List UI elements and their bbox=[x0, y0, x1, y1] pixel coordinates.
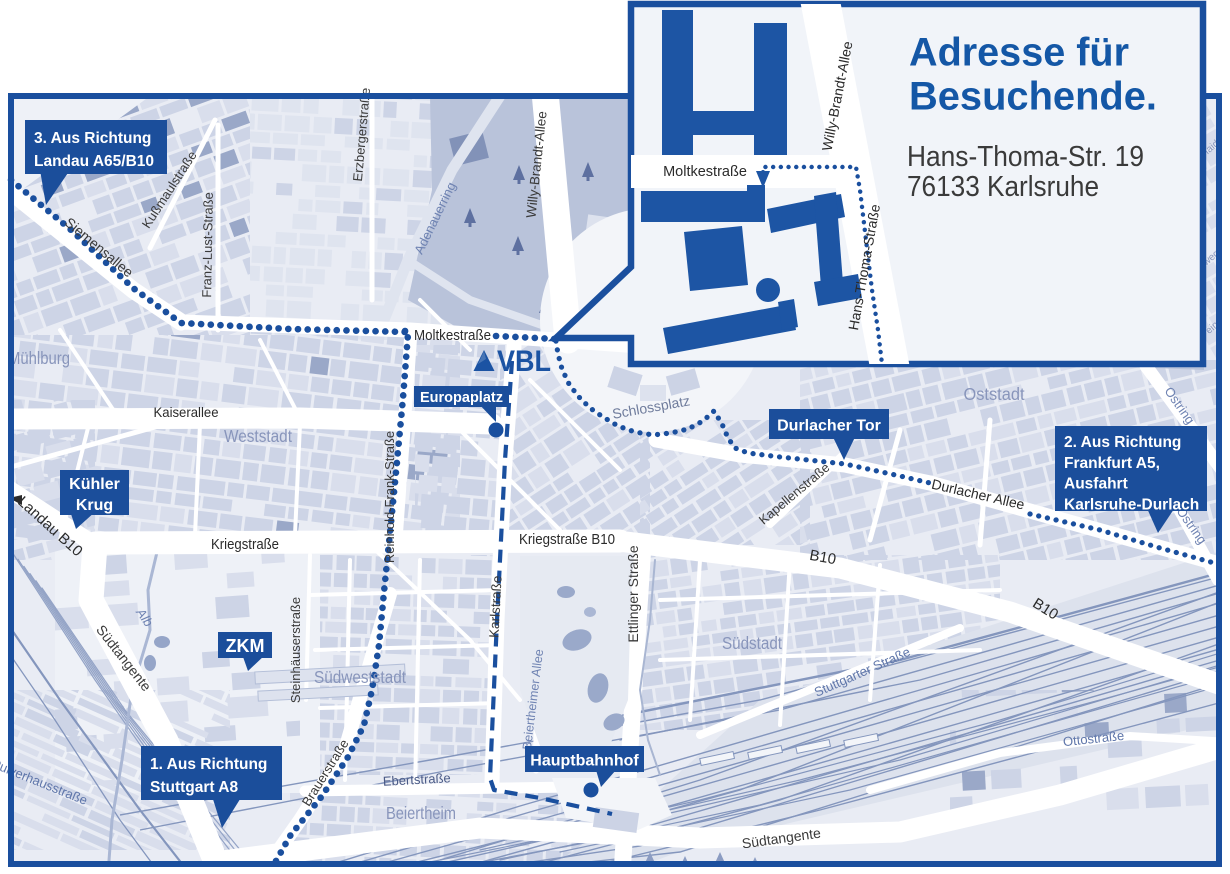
svg-text:Kriegstraße: Kriegstraße bbox=[211, 536, 279, 553]
svg-text:Beiertheim: Beiertheim bbox=[386, 803, 456, 823]
svg-text:Mühlburg: Mühlburg bbox=[8, 348, 70, 368]
svg-text:Reinhold-Frank-Straße: Reinhold-Frank-Straße bbox=[382, 431, 397, 563]
svg-text:Franz-Lust-Straße: Franz-Lust-Straße bbox=[199, 192, 216, 298]
svg-text:Südweststadt: Südweststadt bbox=[314, 667, 406, 687]
svg-text:Kriegstraße B10: Kriegstraße B10 bbox=[519, 531, 615, 548]
svg-text:Moltkestraße: Moltkestraße bbox=[414, 327, 491, 344]
svg-text:Weststadt: Weststadt bbox=[224, 426, 292, 446]
svg-text:Steinhäuserstraße: Steinhäuserstraße bbox=[288, 597, 303, 703]
svg-text:Kaiserallee: Kaiserallee bbox=[154, 404, 219, 420]
